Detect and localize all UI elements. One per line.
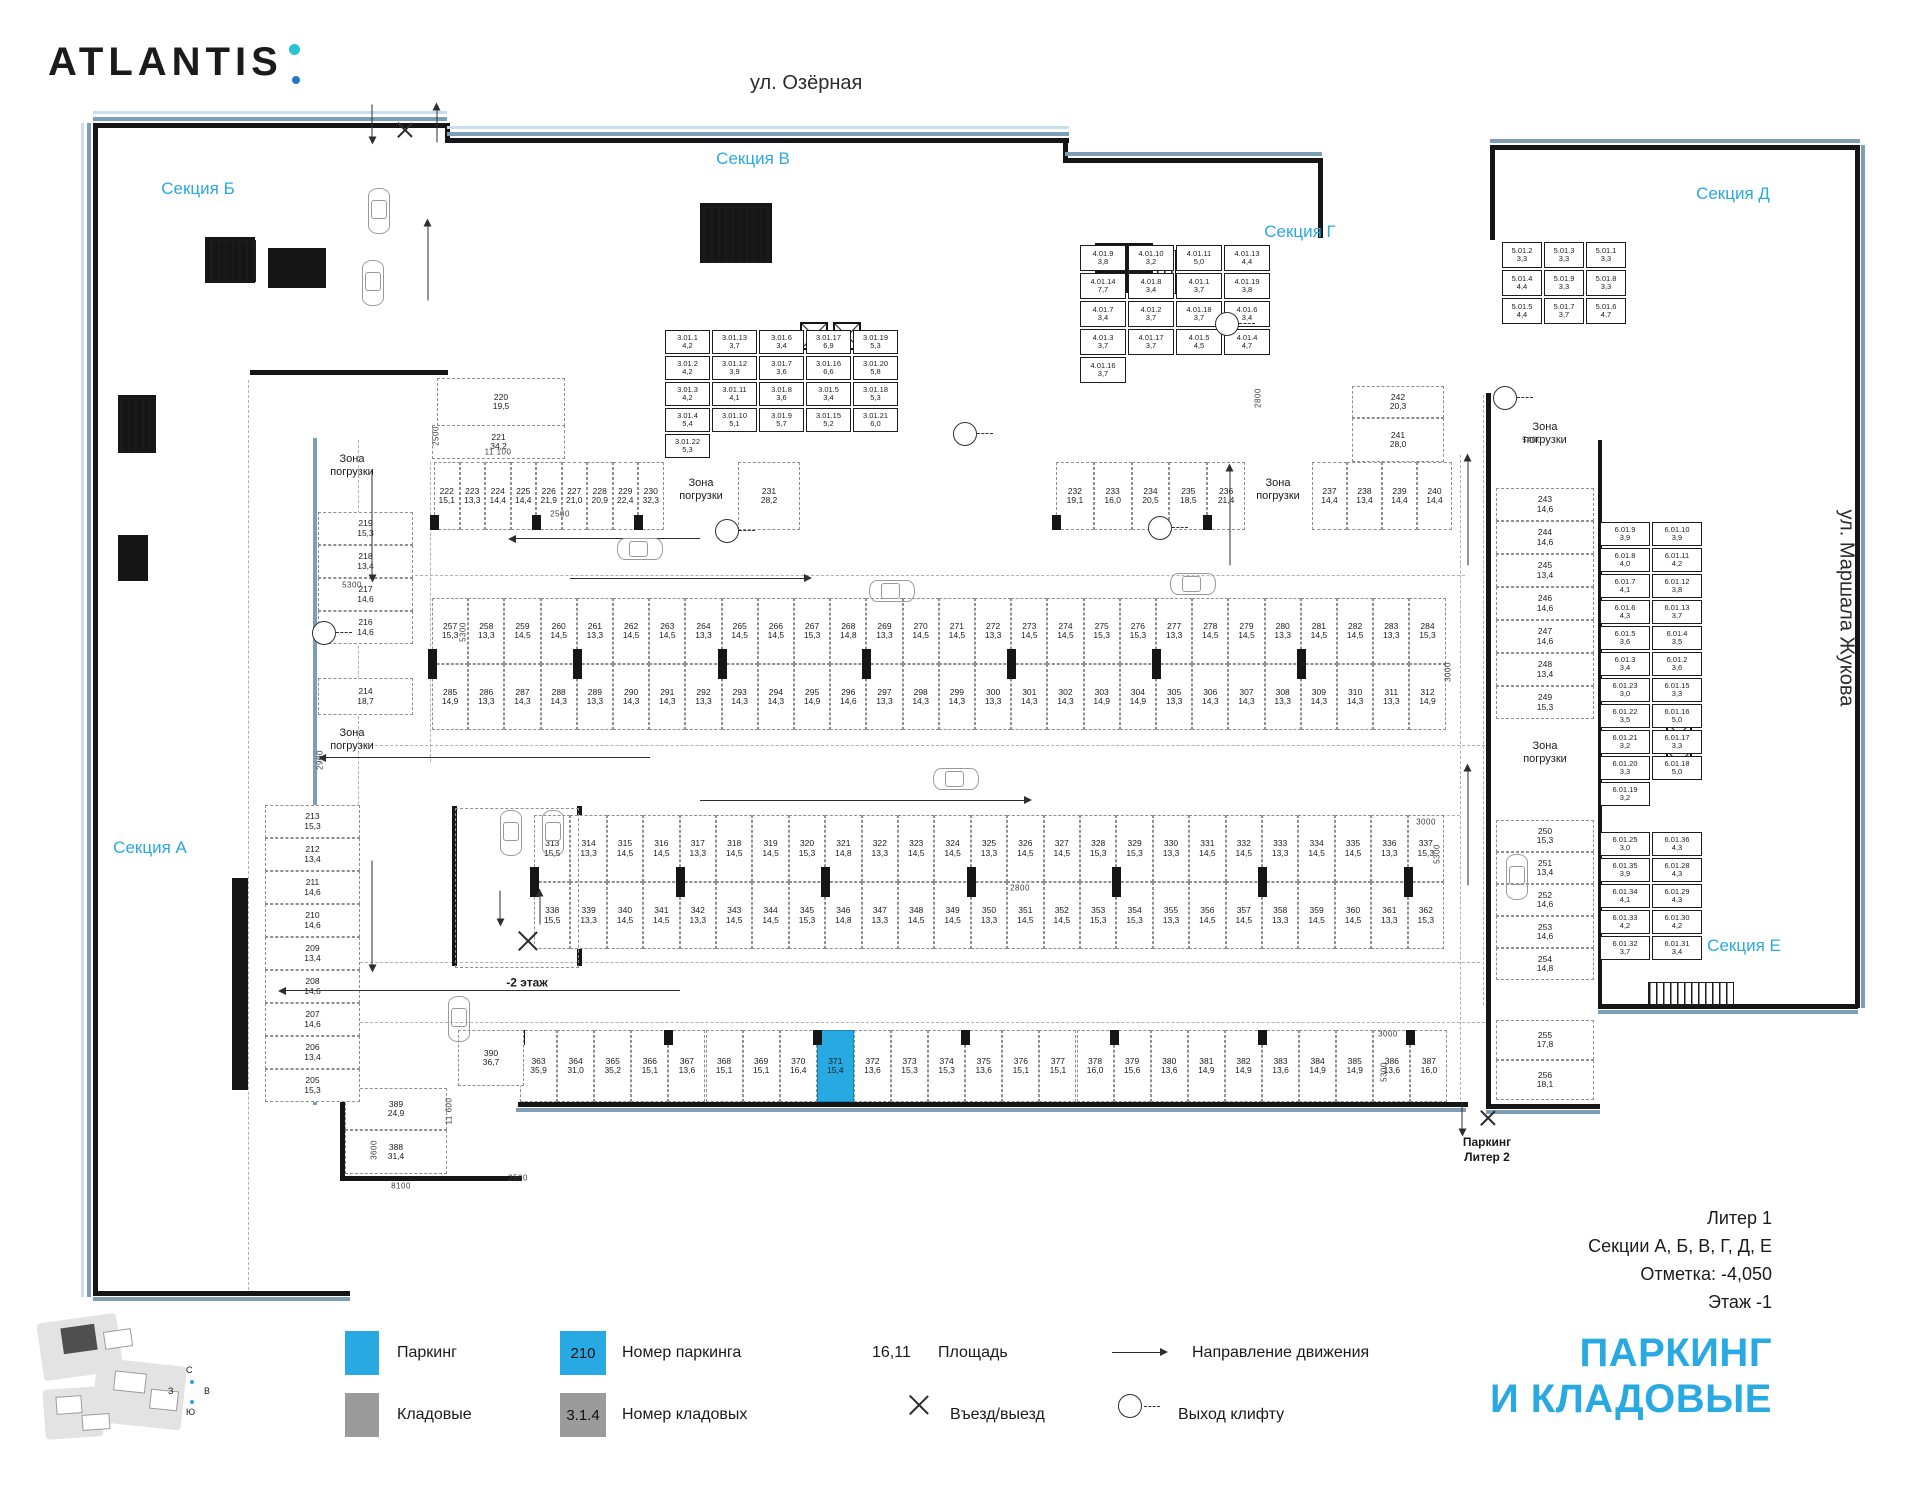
column-post xyxy=(813,1030,822,1045)
dimension-label: 5300 xyxy=(459,622,468,642)
storage-unit-6-01-30[interactable]: 6.01.304,2 xyxy=(1652,910,1702,934)
parking-stall-389[interactable]: 38924,9 xyxy=(345,1088,447,1130)
storage-unit-6-01-7[interactable]: 6.01.74,1 xyxy=(1600,574,1650,598)
wall xyxy=(1486,393,1491,1108)
parking-stall-366[interactable]: 36615,1 xyxy=(631,1030,668,1102)
storage-unit-6-01-8[interactable]: 6.01.84,0 xyxy=(1600,548,1650,572)
parking-stall-307[interactable]: 30714,3 xyxy=(1228,664,1264,730)
parking-stall-362[interactable]: 36215,3 xyxy=(1408,882,1444,949)
stairs-icon xyxy=(703,207,769,263)
storage-unit-3-01-6[interactable]: 3.01.63,4 xyxy=(759,330,804,354)
parking-stall-321[interactable]: 32114,8 xyxy=(825,815,861,882)
parking-stall-271[interactable]: 27114,5 xyxy=(939,598,975,664)
parking-stall-305[interactable]: 30513,3 xyxy=(1156,664,1192,730)
storage-unit-4-01-10[interactable]: 4.01.103,2 xyxy=(1128,245,1174,271)
storage-unit-4-01-14[interactable]: 4.01.147,7 xyxy=(1080,273,1126,299)
legend-lift-exit-label: Выход клифту xyxy=(1178,1406,1284,1424)
parking-stall-388[interactable]: 38831,4 xyxy=(345,1130,447,1174)
parking-stall-274[interactable]: 27414,5 xyxy=(1047,598,1083,664)
storage-unit-3-01-7[interactable]: 3.01.73,6 xyxy=(759,356,804,380)
storage-unit-6-01-21[interactable]: 6.01.213,2 xyxy=(1600,730,1650,754)
column-post xyxy=(718,649,727,664)
storage-unit-6-01-4[interactable]: 6.01.43,5 xyxy=(1652,626,1702,650)
storage-unit-4-01-2[interactable]: 4.01.23,7 xyxy=(1128,301,1174,327)
parking-stall-387[interactable]: 38716,0 xyxy=(1410,1030,1447,1102)
dimension-label: 3000 xyxy=(1444,662,1453,682)
parking-stall-264[interactable]: 26413,3 xyxy=(685,598,721,664)
parking-stall-241[interactable]: 24128,0 xyxy=(1352,418,1444,462)
storage-unit-3-01-16[interactable]: 3.01.166,6 xyxy=(806,356,851,380)
parking-stall-254[interactable]: 25414,8 xyxy=(1496,948,1594,980)
parking-stall-292[interactable]: 29213,3 xyxy=(685,664,721,730)
parking-stall-379[interactable]: 37915,6 xyxy=(1114,1030,1151,1102)
parking-stall-228[interactable]: 22820,9 xyxy=(587,462,613,530)
parking-stall-214[interactable]: 21418,7 xyxy=(318,678,413,715)
parking-stall-247[interactable]: 24714,6 xyxy=(1496,620,1594,653)
parking-stall-276[interactable]: 27615,3 xyxy=(1120,598,1156,664)
ramp-area xyxy=(455,808,579,968)
parking-stall-273[interactable]: 27314,5 xyxy=(1011,598,1047,664)
storage-unit-4-01-13[interactable]: 4.01.134,4 xyxy=(1224,245,1270,271)
storage-unit-6-01-25[interactable]: 6.01.253,0 xyxy=(1600,832,1650,856)
parking-stall-343[interactable]: 34314,5 xyxy=(716,882,752,949)
parking-stall-376[interactable]: 37615,1 xyxy=(1002,1030,1039,1102)
storage-unit-5-01-5[interactable]: 5.01.54,4 xyxy=(1502,298,1542,324)
column-post xyxy=(532,515,541,530)
storage-unit-3-01-1[interactable]: 3.01.14,2 xyxy=(665,330,710,354)
parking-stall-287[interactable]: 28714,3 xyxy=(504,664,540,730)
storage-unit-4-01-8[interactable]: 4.01.83,4 xyxy=(1128,273,1174,299)
parking-stall-231[interactable]: 23128,2 xyxy=(738,462,800,530)
parking-stall-317[interactable]: 31713,3 xyxy=(680,815,716,882)
parking-stall-290[interactable]: 29014,3 xyxy=(613,664,649,730)
storage-unit-3-01-4[interactable]: 3.01.45,4 xyxy=(665,408,710,432)
storage-unit-3-01-2[interactable]: 3.01.24,2 xyxy=(665,356,710,380)
parking-stall-336[interactable]: 33613,3 xyxy=(1371,815,1407,882)
parking-stall-372[interactable]: 37213,6 xyxy=(854,1030,891,1102)
parking-stall-345[interactable]: 34515,3 xyxy=(789,882,825,949)
storage-unit-5-01-1[interactable]: 5.01.13,3 xyxy=(1586,242,1626,268)
parking-stall-291[interactable]: 29114,3 xyxy=(649,664,685,730)
storage-unit-4-01-19[interactable]: 4.01.193,8 xyxy=(1224,273,1270,299)
dimension-label: 2500 xyxy=(508,1174,528,1183)
compass-east: В xyxy=(204,1386,210,1396)
compass-north: С xyxy=(186,1365,193,1375)
exterior-wall-accent xyxy=(87,123,91,1297)
storage-unit-3-01-19[interactable]: 3.01.195,3 xyxy=(853,330,898,354)
parking-stall-283[interactable]: 28313,3 xyxy=(1373,598,1409,664)
storage-unit-6-01-34[interactable]: 6.01.344,1 xyxy=(1600,884,1650,908)
exterior-wall-accent xyxy=(93,1297,350,1301)
storage-unit-4-01-5[interactable]: 4.01.54,5 xyxy=(1176,329,1222,355)
storage-unit-4-01-17[interactable]: 4.01.173,7 xyxy=(1128,329,1174,355)
parking-stall-211[interactable]: 21114,6 xyxy=(265,871,360,904)
storage-unit-5-01-6[interactable]: 5.01.64,7 xyxy=(1586,298,1626,324)
parking-stall-354[interactable]: 35415,3 xyxy=(1116,882,1152,949)
parking-stall-331[interactable]: 33114,5 xyxy=(1189,815,1225,882)
storage-unit-6-01-29[interactable]: 6.01.294,3 xyxy=(1652,884,1702,908)
column-post xyxy=(634,515,643,530)
parking-stall-357[interactable]: 35714,5 xyxy=(1226,882,1262,949)
storage-unit-5-01-2[interactable]: 5.01.23,3 xyxy=(1502,242,1542,268)
parking-stall-341[interactable]: 34114,5 xyxy=(643,882,679,949)
parking-stall-363[interactable]: 36335,9 xyxy=(520,1030,557,1102)
storage-unit-3-01-20[interactable]: 3.01.205,8 xyxy=(853,356,898,380)
parking-stall-232[interactable]: 23219,1 xyxy=(1056,462,1094,530)
parking-stall-358[interactable]: 35813,3 xyxy=(1262,882,1298,949)
storage-unit-5-01-9[interactable]: 5.01.93,3 xyxy=(1544,270,1584,296)
storage-unit-4-01-11[interactable]: 4.01.115,0 xyxy=(1176,245,1222,271)
parking-stall-324[interactable]: 32414,5 xyxy=(934,815,970,882)
parking-stall-328[interactable]: 32815,3 xyxy=(1080,815,1116,882)
storage-unit-6-01-11[interactable]: 6.01.114,2 xyxy=(1652,548,1702,572)
storage-unit-6-01-32[interactable]: 6.01.323,7 xyxy=(1600,936,1650,960)
storage-unit-6-01-36[interactable]: 6.01.364,3 xyxy=(1652,832,1702,856)
dimension-label: 2500 xyxy=(550,510,570,519)
wall xyxy=(518,1102,1468,1107)
parking-stall-280[interactable]: 28013,3 xyxy=(1265,598,1301,664)
parking-stall-245[interactable]: 24513,4 xyxy=(1496,554,1594,587)
parking-stall-297[interactable]: 29713,3 xyxy=(866,664,902,730)
storage-unit-3-01-18[interactable]: 3.01.185,3 xyxy=(853,382,898,406)
parking-stall-320[interactable]: 32015,3 xyxy=(789,815,825,882)
storage-unit-6-01-19[interactable]: 6.01.193,2 xyxy=(1600,782,1650,806)
parking-stall-329[interactable]: 32915,3 xyxy=(1116,815,1152,882)
parking-stall-295[interactable]: 29514,9 xyxy=(794,664,830,730)
parking-stall-375[interactable]: 37513,6 xyxy=(965,1030,1002,1102)
storage-unit-6-01-9[interactable]: 6.01.93,9 xyxy=(1600,522,1650,546)
parking-stall-364[interactable]: 36431,0 xyxy=(557,1030,594,1102)
parking-stall-243[interactable]: 24314,6 xyxy=(1496,488,1594,521)
dimension-label: 11 600 xyxy=(445,1098,454,1125)
parking-stall-310[interactable]: 31014,3 xyxy=(1337,664,1373,730)
storage-unit-4-01-9[interactable]: 4.01.93,8 xyxy=(1080,245,1126,271)
parking-stall-346[interactable]: 34614,8 xyxy=(825,882,861,949)
parking-stall-347[interactable]: 34713,3 xyxy=(862,882,898,949)
logo-dots-icon xyxy=(289,40,300,88)
parking-stall-217[interactable]: 21714,6 xyxy=(318,578,413,611)
parking-stall-359[interactable]: 35914,5 xyxy=(1298,882,1334,949)
parking-stall-282[interactable]: 28214,5 xyxy=(1337,598,1373,664)
legend-lift-exit-icon xyxy=(1118,1394,1142,1418)
parking-stall-327[interactable]: 32714,5 xyxy=(1044,815,1080,882)
storage-unit-6-01-23[interactable]: 6.01.233,0 xyxy=(1600,678,1650,702)
storage-unit-3-01-10[interactable]: 3.01.105,1 xyxy=(712,408,757,432)
storage-unit-6-01-2[interactable]: 6.01.23,6 xyxy=(1652,652,1702,676)
parking-stall-255[interactable]: 25517,8 xyxy=(1496,1020,1594,1060)
parking-stall-272[interactable]: 27213,3 xyxy=(975,598,1011,664)
drive-lane-line xyxy=(360,575,1465,576)
parking-stall-361[interactable]: 36113,3 xyxy=(1371,882,1407,949)
parking-stall-284[interactable]: 28415,3 xyxy=(1409,598,1445,664)
wall xyxy=(340,1176,522,1181)
dimension-label: 2500 xyxy=(432,426,441,446)
parking-stall-352[interactable]: 35214,5 xyxy=(1044,882,1080,949)
parking-stall-353[interactable]: 35315,3 xyxy=(1080,882,1116,949)
parking-stall-315[interactable]: 31514,5 xyxy=(607,815,643,882)
parking-stall-381[interactable]: 38114,9 xyxy=(1188,1030,1225,1102)
parking-stall-384[interactable]: 38414,9 xyxy=(1299,1030,1336,1102)
exterior-wall-accent xyxy=(1490,139,1860,143)
parking-stall-373[interactable]: 37315,3 xyxy=(891,1030,928,1102)
parking-stall-304[interactable]: 30414,9 xyxy=(1120,664,1156,730)
storage-unit-3-01-13[interactable]: 3.01.133,7 xyxy=(712,330,757,354)
parking-stall-227[interactable]: 22721,0 xyxy=(562,462,588,530)
legend-storage-number-swatch: 3.1.4 xyxy=(560,1393,606,1437)
parking-stall-246[interactable]: 24614,6 xyxy=(1496,587,1594,620)
parking-stall-365[interactable]: 36535,2 xyxy=(594,1030,631,1102)
parking-stall-224[interactable]: 22414,4 xyxy=(485,462,511,530)
storage-unit-6-01-22[interactable]: 6.01.223,5 xyxy=(1600,704,1650,728)
exterior-wall-accent xyxy=(1486,1110,1600,1114)
storage-unit-6-01-16[interactable]: 6.01.165,0 xyxy=(1652,704,1702,728)
drive-lane-line xyxy=(340,1022,1490,1023)
parking-stall-270[interactable]: 27014,5 xyxy=(903,598,939,664)
storage-unit-6-01-5[interactable]: 6.01.53,6 xyxy=(1600,626,1650,650)
parking-stall-263[interactable]: 26314,5 xyxy=(649,598,685,664)
storage-unit-3-01-22[interactable]: 3.01.225,3 xyxy=(665,434,710,458)
parking-stall-249[interactable]: 24915,3 xyxy=(1496,686,1594,719)
legend-parking-number-label: Номер паркинга xyxy=(622,1344,741,1362)
parking-stall-289[interactable]: 28913,3 xyxy=(577,664,613,730)
parking-stall-223[interactable]: 22313,3 xyxy=(460,462,486,530)
logo-text: ATLANTIS xyxy=(48,40,283,85)
parking-stall-306[interactable]: 30614,3 xyxy=(1192,664,1228,730)
storage-unit-6-01-31[interactable]: 6.01.313,4 xyxy=(1652,936,1702,960)
parking-stall-238[interactable]: 23813,4 xyxy=(1347,462,1382,530)
direction-arrow-icon xyxy=(1468,456,1469,566)
parking-stall-278[interactable]: 27814,5 xyxy=(1192,598,1228,664)
parking-stall-378[interactable]: 37816,0 xyxy=(1077,1030,1114,1102)
parking-stall-261[interactable]: 26113,3 xyxy=(577,598,613,664)
storage-unit-3-01-12[interactable]: 3.01.123,9 xyxy=(712,356,757,380)
parking-stall-302[interactable]: 30214,3 xyxy=(1047,664,1083,730)
parking-stall-377[interactable]: 37715,1 xyxy=(1039,1030,1076,1102)
storage-unit-3-01-11[interactable]: 3.01.114,1 xyxy=(712,382,757,406)
storage-unit-3-01-17[interactable]: 3.01.176,9 xyxy=(806,330,851,354)
parking-stall-322[interactable]: 32213,3 xyxy=(862,815,898,882)
parking-stall-266[interactable]: 26614,5 xyxy=(758,598,794,664)
storage-unit-6-01-3[interactable]: 6.01.33,4 xyxy=(1600,652,1650,676)
storage-unit-6-01-35[interactable]: 6.01.353,9 xyxy=(1600,858,1650,882)
parking-stall-323[interactable]: 32314,5 xyxy=(898,815,934,882)
parking-stall-298[interactable]: 29814,3 xyxy=(903,664,939,730)
car-icon xyxy=(617,538,663,560)
parking-stall-368[interactable]: 36815,1 xyxy=(706,1030,743,1102)
parking-stall-301[interactable]: 30114,3 xyxy=(1011,664,1047,730)
parking-stall-385[interactable]: 38514,9 xyxy=(1336,1030,1373,1102)
parking-stall-239[interactable]: 23914,4 xyxy=(1382,462,1417,530)
parking-stall-281[interactable]: 28114,5 xyxy=(1301,598,1337,664)
storage-unit-5-01-8[interactable]: 5.01.83,3 xyxy=(1586,270,1626,296)
column-post xyxy=(428,649,437,664)
legend-entry-exit-icon xyxy=(905,1392,931,1418)
loading-zone-label: Зона погрузки xyxy=(330,727,374,753)
parking-stall-308[interactable]: 30813,3 xyxy=(1265,664,1301,730)
parking-stall-267[interactable]: 26715,3 xyxy=(794,598,830,664)
parking-stall-383[interactable]: 38313,6 xyxy=(1262,1030,1299,1102)
storage-unit-5-01-4[interactable]: 5.01.44,4 xyxy=(1502,270,1542,296)
parking-stall-380[interactable]: 38013,6 xyxy=(1151,1030,1188,1102)
parking-stall-360[interactable]: 36014,5 xyxy=(1335,882,1371,949)
dimension-label: 2800 xyxy=(1254,388,1263,408)
wall xyxy=(1065,158,1322,163)
parking-stall-253[interactable]: 25314,6 xyxy=(1496,916,1594,948)
parking-stall-318[interactable]: 31814,5 xyxy=(716,815,752,882)
parking-stall-348[interactable]: 34814,5 xyxy=(898,882,934,949)
column-post xyxy=(1258,867,1267,882)
parking-stall-209[interactable]: 20913,4 xyxy=(265,937,360,970)
parking-stall-344[interactable]: 34414,5 xyxy=(752,882,788,949)
lift-exit-stub xyxy=(739,530,755,531)
parking-stall-342[interactable]: 34213,3 xyxy=(680,882,716,949)
parking-stall-367[interactable]: 36713,6 xyxy=(668,1030,705,1102)
storage-unit-3-01-21[interactable]: 3.01.216,0 xyxy=(853,408,898,432)
parking-stall-206[interactable]: 20613,4 xyxy=(265,1036,360,1069)
section-label: Секция Г xyxy=(1264,222,1336,242)
parking-stall-340[interactable]: 34014,5 xyxy=(607,882,643,949)
parking-stall-220[interactable]: 22019,5 xyxy=(437,378,565,426)
parking-stall-219[interactable]: 21915,3 xyxy=(318,512,413,545)
storage-unit-3-01-9[interactable]: 3.01.95,7 xyxy=(759,408,804,432)
parking-stall-316[interactable]: 31614,5 xyxy=(643,815,679,882)
wall xyxy=(232,878,248,1090)
storage-unit-6-01-10[interactable]: 6.01.103,9 xyxy=(1652,522,1702,546)
storage-unit-6-01-6[interactable]: 6.01.64,3 xyxy=(1600,600,1650,624)
parking-stall-210[interactable]: 21014,6 xyxy=(265,904,360,937)
parking-stall-303[interactable]: 30314,9 xyxy=(1084,664,1120,730)
parking-stall-285[interactable]: 28514,9 xyxy=(432,664,468,730)
section-label: Секция Б xyxy=(161,179,235,199)
storage-unit-6-01-17[interactable]: 6.01.173,3 xyxy=(1652,730,1702,754)
storage-unit-5-01-7[interactable]: 5.01.73,7 xyxy=(1544,298,1584,324)
storage-unit-6-01-28[interactable]: 6.01.284,3 xyxy=(1652,858,1702,882)
dimension-label: 3000 xyxy=(1416,818,1436,827)
parking-stall-326[interactable]: 32614,5 xyxy=(1007,815,1043,882)
parking-stall-319[interactable]: 31914,5 xyxy=(752,815,788,882)
parking-stall-258[interactable]: 25813,3 xyxy=(468,598,504,664)
wall xyxy=(1490,145,1495,240)
storage-unit-4-01-3[interactable]: 4.01.33,7 xyxy=(1080,329,1126,355)
parking-stall-294[interactable]: 29414,3 xyxy=(758,664,794,730)
parking-stall-240[interactable]: 24014,4 xyxy=(1417,462,1452,530)
parking-stall-259[interactable]: 25914,5 xyxy=(504,598,540,664)
parking-stall-237[interactable]: 23714,4 xyxy=(1312,462,1347,530)
lift-exit-stub xyxy=(1517,397,1533,398)
parking-stall-248[interactable]: 24813,4 xyxy=(1496,653,1594,686)
storage-unit-3-01-15[interactable]: 3.01.155,2 xyxy=(806,408,851,432)
column-post xyxy=(1112,882,1121,897)
parking-stall-312[interactable]: 31214,9 xyxy=(1409,664,1445,730)
parking-stall-335[interactable]: 33514,5 xyxy=(1335,815,1371,882)
car-icon xyxy=(933,768,979,790)
storage-unit-4-01-16[interactable]: 4.01.163,7 xyxy=(1080,357,1126,383)
parking-stall-286[interactable]: 28613,3 xyxy=(468,664,504,730)
lift-exit-icon xyxy=(1148,516,1172,540)
direction-arrow-icon xyxy=(1468,766,1469,886)
parking-stall-256[interactable]: 25618,1 xyxy=(1496,1060,1594,1100)
parking-stall-250[interactable]: 25015,3 xyxy=(1496,820,1594,852)
storage-unit-4-01-1[interactable]: 4.01.13,7 xyxy=(1176,273,1222,299)
parking-stall-300[interactable]: 30013,3 xyxy=(975,664,1011,730)
parking-stall-244[interactable]: 24414,6 xyxy=(1496,521,1594,554)
parking-stall-311[interactable]: 31113,3 xyxy=(1373,664,1409,730)
parking-stall-207[interactable]: 20714,6 xyxy=(265,1003,360,1036)
storage-unit-3-01-3[interactable]: 3.01.34,2 xyxy=(665,382,710,406)
parking-stall-309[interactable]: 30914,3 xyxy=(1301,664,1337,730)
parking-stall-233[interactable]: 23316,0 xyxy=(1094,462,1132,530)
storage-unit-4-01-7[interactable]: 4.01.73,4 xyxy=(1080,301,1126,327)
parking-stall-268[interactable]: 26814,8 xyxy=(830,598,866,664)
parking-stall-374[interactable]: 37415,3 xyxy=(928,1030,965,1102)
parking-stall-325[interactable]: 32513,3 xyxy=(971,815,1007,882)
parking-stall-212[interactable]: 21213,4 xyxy=(265,838,360,871)
storage-unit-3-01-5[interactable]: 3.01.53,4 xyxy=(806,382,851,406)
parking-stall-369[interactable]: 36915,1 xyxy=(743,1030,780,1102)
parking-stall-277[interactable]: 27713,3 xyxy=(1156,598,1192,664)
storage-unit-6-01-33[interactable]: 6.01.334,2 xyxy=(1600,910,1650,934)
parking-stall-382[interactable]: 38214,9 xyxy=(1225,1030,1262,1102)
parking-stall-262[interactable]: 26214,5 xyxy=(613,598,649,664)
parking-stall-218[interactable]: 21813,4 xyxy=(318,545,413,578)
storage-unit-6-01-18[interactable]: 6.01.185,0 xyxy=(1652,756,1702,780)
parking-stall-299[interactable]: 29914,3 xyxy=(939,664,975,730)
parking-stall-260[interactable]: 26014,5 xyxy=(541,598,577,664)
storage-unit-6-01-15[interactable]: 6.01.153,3 xyxy=(1652,678,1702,702)
parking-stall-279[interactable]: 27914,5 xyxy=(1228,598,1264,664)
parking-stall-330[interactable]: 33013,3 xyxy=(1153,815,1189,882)
storage-unit-5-01-3[interactable]: 5.01.33,3 xyxy=(1544,242,1584,268)
wall xyxy=(93,1291,350,1296)
parking-stall-370[interactable]: 37016,4 xyxy=(780,1030,817,1102)
parking-stall-235[interactable]: 23518,5 xyxy=(1169,462,1207,530)
parking-stall-242[interactable]: 24220,3 xyxy=(1352,386,1444,418)
parking-stall-288[interactable]: 28814,3 xyxy=(541,664,577,730)
storage-unit-6-01-13[interactable]: 6.01.133,7 xyxy=(1652,600,1702,624)
storage-unit-3-01-8[interactable]: 3.01.83,6 xyxy=(759,382,804,406)
parking-stall-356[interactable]: 35614,5 xyxy=(1189,882,1225,949)
lift-exit-stub xyxy=(977,433,993,434)
column-post xyxy=(1152,664,1161,679)
legend-area-label: Площадь xyxy=(938,1344,1008,1362)
parking-stall-355[interactable]: 35513,3 xyxy=(1153,882,1189,949)
storage-unit-6-01-20[interactable]: 6.01.203,3 xyxy=(1600,756,1650,780)
parking-stall-265[interactable]: 26514,5 xyxy=(722,598,758,664)
parking-stall-205[interactable]: 20515,3 xyxy=(265,1069,360,1102)
parking-stall-213[interactable]: 21315,3 xyxy=(265,805,360,838)
parking-stall-350[interactable]: 35013,3 xyxy=(971,882,1007,949)
stairs-icon xyxy=(120,398,156,452)
parking-stall-332[interactable]: 33214,5 xyxy=(1226,815,1262,882)
column-post xyxy=(718,664,727,679)
legend-parking-number-swatch: 210 xyxy=(560,1331,606,1375)
direction-arrow-icon xyxy=(510,538,700,539)
parking-stall-236[interactable]: 23621,4 xyxy=(1207,462,1245,530)
legend-storage-swatch xyxy=(345,1393,379,1437)
parking-stall-334[interactable]: 33414,5 xyxy=(1298,815,1334,882)
exterior-wall-accent xyxy=(1065,152,1322,156)
parking-stall-371[interactable]: 37115,4 xyxy=(817,1030,854,1102)
parking-stall-275[interactable]: 27515,3 xyxy=(1084,598,1120,664)
parking-stall-333[interactable]: 33313,3 xyxy=(1262,815,1298,882)
parking-stall-293[interactable]: 29314,3 xyxy=(722,664,758,730)
parking-stall-296[interactable]: 29614,6 xyxy=(830,664,866,730)
column-post xyxy=(821,882,830,897)
storage-unit-6-01-12[interactable]: 6.01.123,8 xyxy=(1652,574,1702,598)
parking-stall-349[interactable]: 34914,5 xyxy=(934,882,970,949)
parking-stall-269[interactable]: 26913,3 xyxy=(866,598,902,664)
exterior-wall-accent xyxy=(1598,1010,1858,1014)
